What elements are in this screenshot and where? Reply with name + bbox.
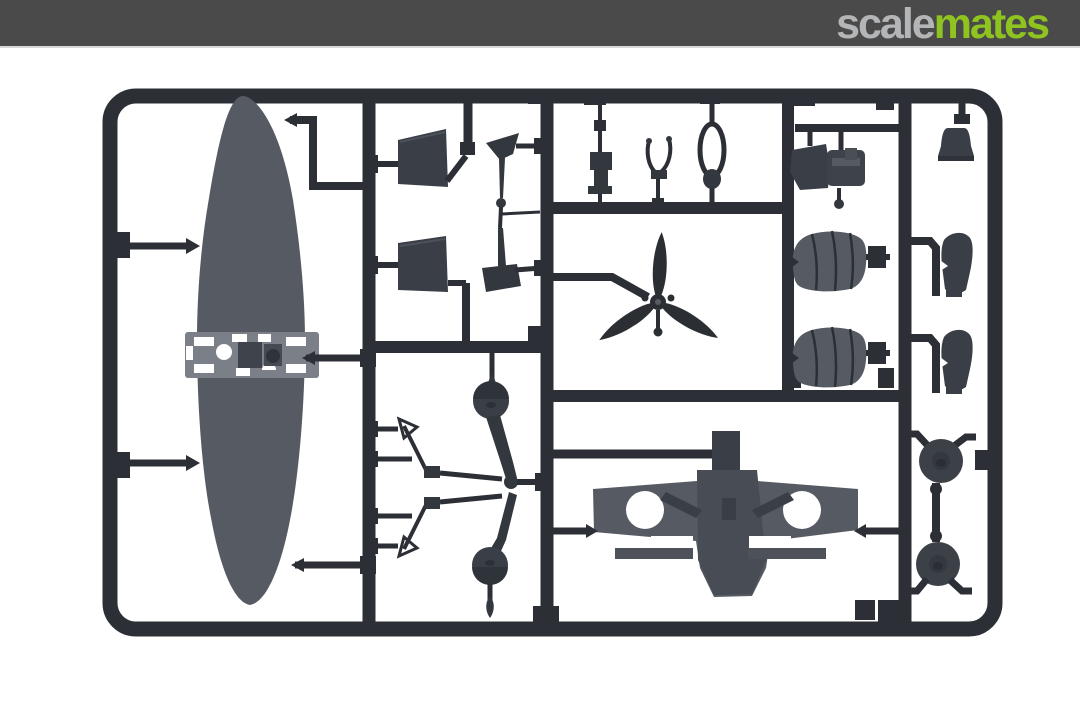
cowling-half-top [788, 231, 890, 291]
main-wheel-top [905, 434, 976, 483]
control-column [588, 96, 612, 208]
wheel-connector-runner [930, 483, 942, 542]
three-blade-propeller [553, 232, 722, 346]
sprue-photo[interactable] [0, 48, 1080, 717]
landing-gear-strut-top [473, 353, 549, 491]
cowling-half-bottom [788, 327, 890, 387]
antenna-mast-top [366, 419, 502, 479]
tail-cone [938, 100, 974, 161]
site-banner: scalemates [0, 0, 1080, 48]
horizontal-stabilizer-left [364, 96, 475, 187]
one-piece-lower-wing [116, 96, 376, 605]
sprue-illustration [0, 48, 1080, 717]
logo-text-mates: mates [934, 0, 1048, 48]
tailwheel-fork [646, 136, 672, 208]
horizontal-stabilizer-right [364, 236, 466, 347]
antenna-mast-bottom [366, 496, 502, 556]
page: scalemates [0, 0, 1080, 717]
exhaust-fairing-top [905, 233, 973, 297]
logo-text-scale: scale [836, 0, 934, 48]
engine-block [790, 130, 865, 209]
scalemates-logo[interactable]: scalemates [836, 1, 1048, 47]
seat-frame [700, 104, 724, 208]
spinner-half-top [486, 133, 548, 214]
landing-gear-strut-bottom [472, 492, 517, 618]
main-wheel-bottom [905, 542, 972, 591]
exhaust-fairing-bottom [905, 330, 973, 394]
spinner-half-bottom [482, 207, 548, 292]
